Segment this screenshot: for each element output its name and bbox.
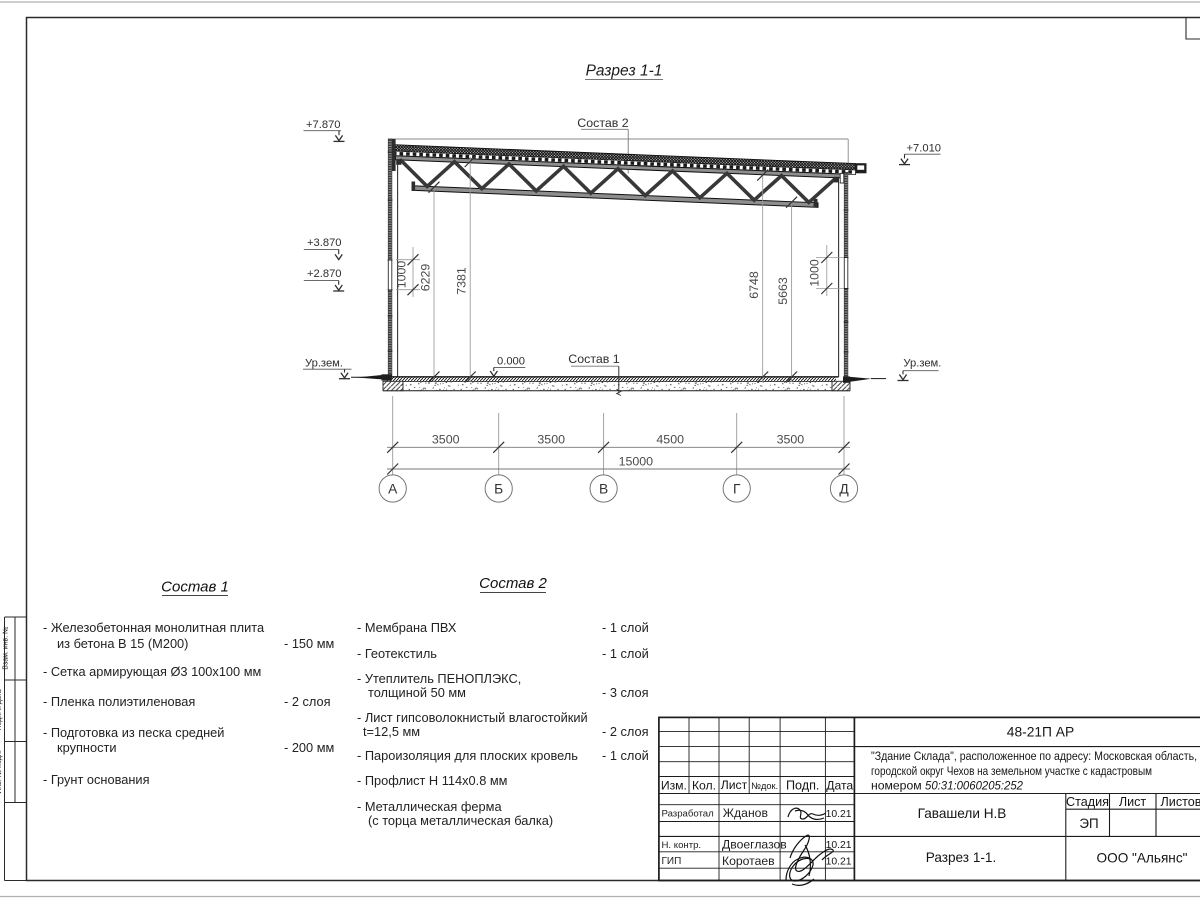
svg-text:Листов: Листов <box>1161 795 1200 809</box>
svg-text:- Геотекстиль: - Геотекстиль <box>357 646 437 661</box>
svg-text:10.21: 10.21 <box>826 857 852 868</box>
svg-text:3500: 3500 <box>432 433 460 447</box>
svg-text:t=12,5 мм: t=12,5 мм <box>363 724 420 739</box>
svg-text:Лист: Лист <box>1119 795 1147 809</box>
svg-text:- 1 слой: - 1 слой <box>602 646 649 661</box>
svg-text:№док.: №док. <box>751 781 778 791</box>
svg-text:Инв. № подл.: Инв. № подл. <box>0 750 3 794</box>
svg-text:Коротаев: Коротаев <box>722 854 775 868</box>
svg-text:Лист: Лист <box>721 778 748 792</box>
svg-text:ООО "Альянс": ООО "Альянс" <box>1097 851 1188 866</box>
svg-text:Разрез 1-1: Разрез 1-1 <box>586 63 663 80</box>
svg-text:3500: 3500 <box>777 433 805 447</box>
svg-text:10.21: 10.21 <box>826 809 852 820</box>
svg-text:Состав 1: Состав 1 <box>161 579 229 596</box>
svg-text:6748: 6748 <box>747 271 761 299</box>
svg-text:Кол.: Кол. <box>692 779 716 793</box>
svg-text:крупности: крупности <box>57 740 117 755</box>
svg-text:1000: 1000 <box>395 261 409 289</box>
svg-text:- Металлическая ферма: - Металлическая ферма <box>357 799 502 814</box>
svg-text:- 2 слоя: - 2 слоя <box>284 694 331 709</box>
svg-text:- Пленка полиэтиленовая: - Пленка полиэтиленовая <box>43 694 195 709</box>
svg-text:Ур.зем.: Ур.зем. <box>903 358 941 370</box>
svg-text:Г: Г <box>733 481 741 496</box>
svg-text:городской округ Чехов на земел: городской округ Чехов на земельном участ… <box>871 764 1152 778</box>
svg-text:Д: Д <box>839 481 849 496</box>
svg-text:Состав 2: Состав 2 <box>479 575 547 592</box>
svg-text:48-21П АР: 48-21П АР <box>1007 725 1074 740</box>
svg-text:Гавашели Н.В: Гавашели Н.В <box>918 806 1007 821</box>
svg-text:+2.870: +2.870 <box>307 268 342 280</box>
svg-text:+3.870: +3.870 <box>307 237 342 249</box>
svg-text:5663: 5663 <box>776 277 790 305</box>
svg-text:7381: 7381 <box>455 267 469 295</box>
svg-text:Ур.зем.: Ур.зем. <box>305 358 343 370</box>
svg-text:50:31:0060205:252: 50:31:0060205:252 <box>925 778 1023 792</box>
svg-text:- Пароизоляция для плоских кро: - Пароизоляция для плоских кровель <box>357 748 578 763</box>
svg-text:- Грунт основания: - Грунт основания <box>43 772 150 787</box>
svg-text:ЭП: ЭП <box>1079 816 1098 831</box>
svg-text:- 150 мм: - 150 мм <box>284 636 334 651</box>
svg-text:Жданов: Жданов <box>723 806 768 820</box>
svg-text:- Профлист Н 114х0.8 мм: - Профлист Н 114х0.8 мм <box>357 773 507 788</box>
svg-text:- 3 слоя: - 3 слоя <box>602 685 649 700</box>
svg-text:4500: 4500 <box>656 433 684 447</box>
svg-text:1000: 1000 <box>807 259 821 287</box>
svg-text:Состав 2: Состав 2 <box>577 116 628 130</box>
svg-text:Подп.: Подп. <box>786 779 819 793</box>
svg-text:А: А <box>388 481 398 496</box>
svg-text:- Лист гипсоволокнистый влагос: - Лист гипсоволокнистый влагостойкий <box>357 710 588 725</box>
svg-text:6229: 6229 <box>419 264 433 292</box>
svg-text:Изм.: Изм. <box>661 779 687 793</box>
svg-text:- Железобетонная монолитная п: - Железобетонная монолитная плита <box>43 620 265 635</box>
svg-text:0.000: 0.000 <box>497 356 525 368</box>
svg-text:В: В <box>599 481 608 496</box>
svg-text:толщиной 50 мм: толщиной 50 мм <box>368 685 466 700</box>
svg-text:3500: 3500 <box>537 433 565 447</box>
svg-text:- Сетка армирующая Ø3 100х100: - Сетка армирующая Ø3 100х100 мм <box>43 664 261 679</box>
svg-text:- 200 мм: - 200 мм <box>284 740 334 755</box>
svg-text:- Утеплитель ПЕНОПЛЭКС,: - Утеплитель ПЕНОПЛЭКС, <box>357 671 521 686</box>
svg-text:"Здание Склада", расположенное: "Здание Склада", расположенное по адресу… <box>871 749 1197 763</box>
svg-text:Подп. и дата: Подп. и дата <box>0 689 3 730</box>
svg-text:Двоеглазов: Двоеглазов <box>722 838 787 852</box>
svg-text:- Мембрана ПВХ: - Мембрана ПВХ <box>357 620 457 635</box>
svg-text:Б: Б <box>494 481 503 496</box>
svg-text:Состав 1: Состав 1 <box>568 352 619 366</box>
svg-text:Взам. инв. №: Взам. инв. № <box>3 626 10 669</box>
svg-text:- 1 слой: - 1 слой <box>602 748 649 763</box>
svg-text:(с торца металлическая балка): (с торца металлическая балка) <box>368 813 553 828</box>
svg-text:- Подготовка из песка средней: - Подготовка из песка средней <box>43 725 224 740</box>
svg-text:ГИП: ГИП <box>662 856 682 867</box>
svg-text:Н. контр.: Н. контр. <box>662 840 702 851</box>
svg-text:15000: 15000 <box>619 454 654 468</box>
svg-text:из бетона В 15 (М200): из бетона В 15 (М200) <box>57 636 188 651</box>
svg-text:+7.870: +7.870 <box>306 119 341 131</box>
svg-text:+7.010: +7.010 <box>907 143 942 155</box>
svg-text:Разработал: Разработал <box>662 808 714 819</box>
svg-text:- 2 слоя: - 2 слоя <box>602 724 649 739</box>
svg-text:Стадия: Стадия <box>1066 795 1109 809</box>
svg-text:Дата: Дата <box>826 779 853 793</box>
svg-text:номером: номером <box>871 778 922 792</box>
svg-text:Разрез 1-1.: Разрез 1-1. <box>926 850 997 865</box>
svg-text:- 1 слой: - 1 слой <box>602 620 649 635</box>
